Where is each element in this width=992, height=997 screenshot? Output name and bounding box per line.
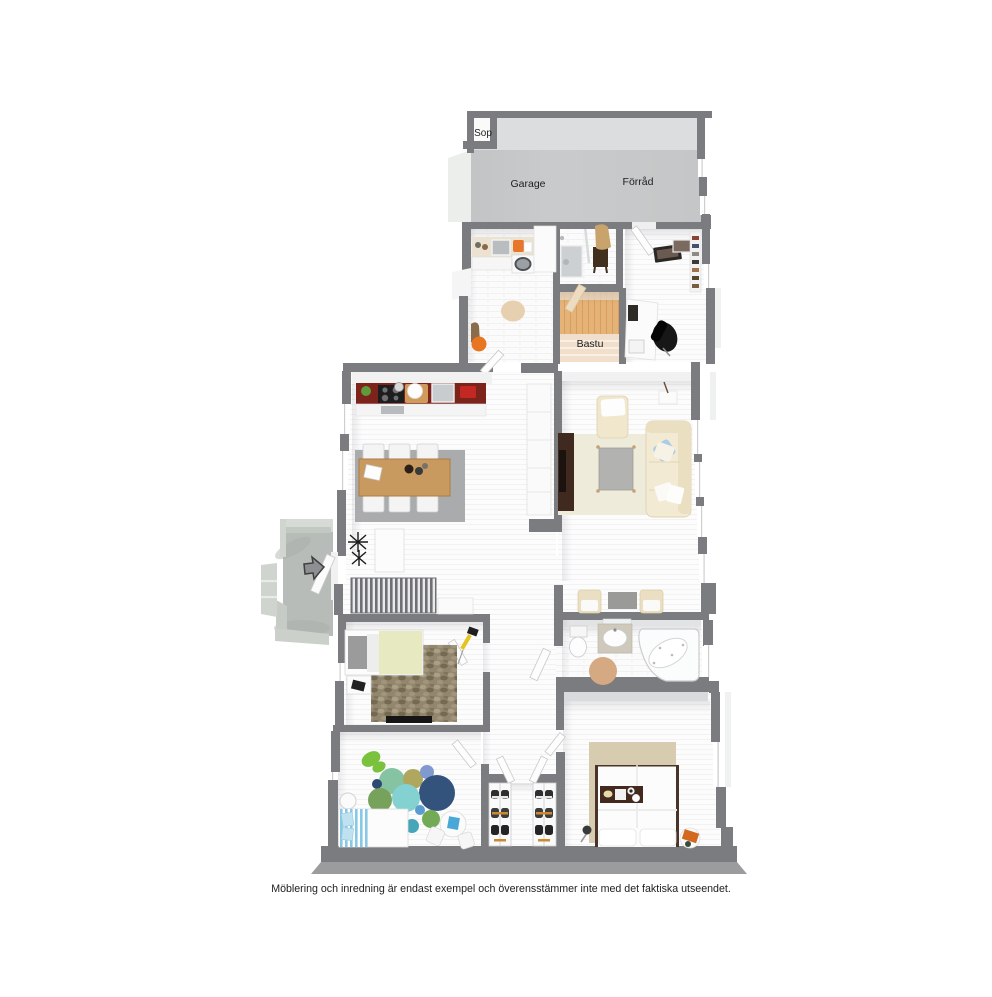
svg-text:Bastu: Bastu (577, 338, 604, 350)
svg-text:Sop: Sop (474, 128, 492, 139)
svg-text:Garage: Garage (510, 178, 545, 190)
svg-text:Förråd: Förråd (623, 176, 654, 188)
svg-text:Möblering och inredning är end: Möblering och inredning är endast exempe… (271, 883, 731, 895)
